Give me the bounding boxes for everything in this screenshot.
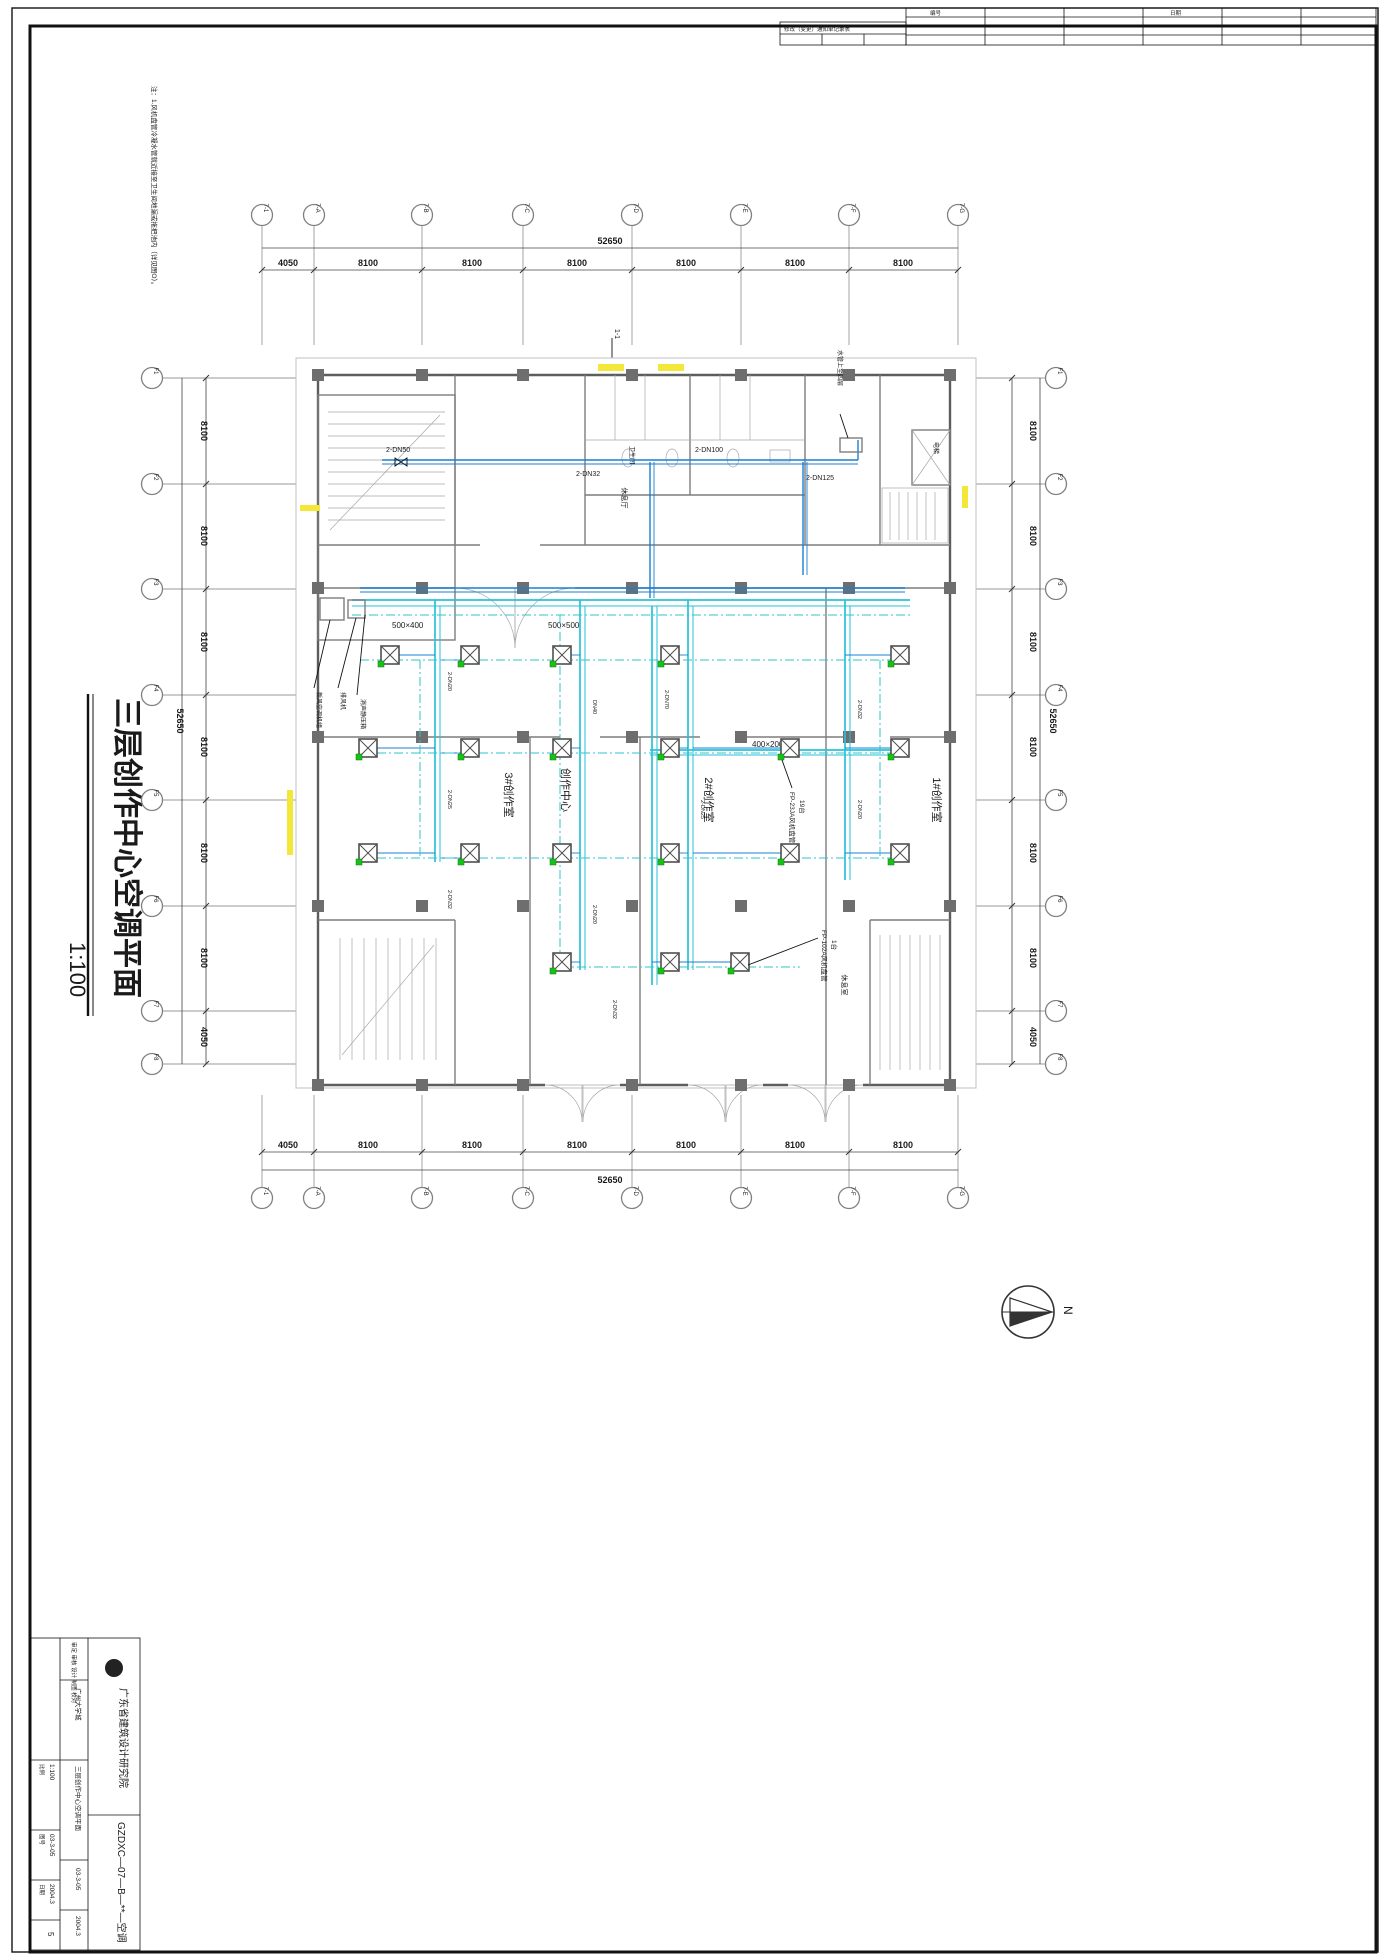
section-mark: 1-1 bbox=[606, 329, 620, 358]
sheet-border bbox=[12, 8, 1378, 1952]
axis-bubble-label: F1 bbox=[152, 367, 158, 375]
building-plan bbox=[287, 358, 976, 1122]
drawing-date: 2004.3 bbox=[74, 1916, 81, 1936]
fcu-unit bbox=[778, 739, 799, 760]
fcu-unit bbox=[356, 739, 377, 760]
dim-total: 52650 bbox=[175, 708, 185, 733]
room-label-toilet: 卫生间 bbox=[628, 446, 636, 464]
axis-bubble-label: 7-D bbox=[632, 1186, 638, 1196]
dim-label: 8100 bbox=[462, 258, 482, 268]
title-block: 广东省建筑设计研究院 GZDXC—07—B—**—空调 审定 审核 设计 制图 … bbox=[30, 1638, 140, 1950]
dim-label: 8100 bbox=[199, 948, 209, 968]
date-label: 日期 bbox=[38, 1884, 45, 1896]
dim-label: 8100 bbox=[1028, 421, 1038, 441]
pipe-label: 2-DN32 bbox=[611, 1000, 617, 1019]
dim-label: 8100 bbox=[1028, 948, 1038, 968]
equipment-label-ahu: 新风空调机组 bbox=[315, 692, 323, 728]
axis-bubble-label: 7-B bbox=[422, 1186, 428, 1195]
company-name: 广东省建筑设计研究院 bbox=[117, 1688, 130, 1788]
number-value: 03-3-05 bbox=[48, 1834, 55, 1857]
dim-label: 8100 bbox=[199, 632, 209, 652]
pipe-label: 2-DN100 bbox=[695, 447, 723, 454]
hvac-corridor-pipes: 2-DN50 2-DN32 2-DN100 2-DN125 bbox=[382, 440, 858, 598]
fcu-unit bbox=[888, 739, 909, 760]
dim-label: 8100 bbox=[199, 421, 209, 441]
pipe-label: 2-DN32 bbox=[576, 471, 600, 478]
dim-label: 8100 bbox=[358, 258, 378, 268]
drawing-number: 03-3-05 bbox=[74, 1868, 81, 1891]
equipment-label-riser: 水管上至四层 bbox=[836, 350, 844, 386]
fcu-callout-fp102-count: 1台 bbox=[830, 940, 839, 950]
scale-value: 1:100 bbox=[48, 1764, 55, 1781]
fcu-unit bbox=[458, 646, 479, 667]
hvac-equipment: 新风空调机组 排风机 消声静压箱 水管上至四层 bbox=[314, 350, 862, 729]
fcu-unit bbox=[378, 646, 399, 667]
pipe-label: 2-DN20 bbox=[856, 800, 862, 819]
dim-label: 8100 bbox=[199, 737, 209, 757]
dim-label: 8100 bbox=[1028, 632, 1038, 652]
fcu-unit bbox=[458, 739, 479, 760]
axis-bubble-label: F6 bbox=[1056, 895, 1062, 903]
axis-bubble-label: 7-C bbox=[523, 1186, 529, 1196]
project-name: 广州大学城 bbox=[74, 1688, 83, 1721]
room-labels: 3#创作室 创作中心 2#创作室 1#创作室 卫生间 电梯 休息厅 休息室 bbox=[502, 442, 944, 996]
pipe-label: 2-DN25 bbox=[699, 800, 705, 819]
fcu-unit bbox=[550, 646, 571, 667]
fcu-unit bbox=[550, 844, 571, 865]
duct-size-label: 500×400 bbox=[392, 621, 424, 630]
axis-bubble-label: F8 bbox=[1056, 1053, 1062, 1061]
axis-bubble-label: F7 bbox=[1056, 1000, 1062, 1008]
equipment-label-fan: 排风机 bbox=[339, 692, 347, 710]
axis-bubble-label: 7-E bbox=[741, 203, 747, 212]
pipe-label: 2-DN20 bbox=[591, 905, 597, 924]
axis-bubble-label: 7-1 bbox=[262, 1187, 268, 1196]
axis-bubble-label: F2 bbox=[152, 473, 158, 481]
structural-columns bbox=[312, 369, 956, 1091]
stair-bottom-right bbox=[870, 920, 950, 1085]
hvac-branch-runs bbox=[360, 600, 905, 985]
dim-total: 52650 bbox=[1048, 708, 1058, 733]
axis-bubble-label: 7-E bbox=[741, 1186, 747, 1195]
axis-bubble-label: F5 bbox=[1056, 789, 1062, 797]
dim-label: 8100 bbox=[1028, 843, 1038, 863]
duct-size-label: 500×500 bbox=[548, 621, 580, 630]
section-mark-label: 1-1 bbox=[613, 329, 620, 339]
dim-label: 8100 bbox=[358, 1140, 378, 1150]
dim-label: 8100 bbox=[893, 258, 913, 268]
fcu-unit bbox=[658, 844, 679, 865]
dim-label: 8100 bbox=[199, 526, 209, 546]
drawing-title-small: 三层创作中心空调平面 bbox=[74, 1766, 83, 1832]
axis-bubble-label: F1 bbox=[1056, 367, 1062, 375]
axis-bubble-label: F2 bbox=[1056, 473, 1062, 481]
pipe-label: 2-DN125 bbox=[806, 475, 834, 482]
grid-bottom: 7-1 7-A 7-B 7-C 7-D 7-E 7-F 7-G 4050 810… bbox=[252, 1095, 969, 1209]
sheet-number: 5 bbox=[46, 1932, 55, 1937]
axis-bubble-label: F6 bbox=[152, 895, 158, 903]
drawing-title-block: 三层创作中心空调平面 1:100 bbox=[65, 694, 143, 1016]
pipe-label: 2-DN70 bbox=[663, 690, 669, 709]
fcu-callout-fp23: FP-23JA风机盘管 bbox=[788, 792, 797, 844]
fcu-unit bbox=[356, 844, 377, 865]
revision-col-2: 日期 bbox=[1170, 10, 1182, 17]
dim-label: 8100 bbox=[1028, 526, 1038, 546]
fcu-callout-fp102: FP-102A风机盘管 bbox=[820, 930, 829, 982]
grid-right: F1 F2 F3 F4 F5 F6 F7 F8 8100 8100 8100 8… bbox=[976, 367, 1067, 1074]
date-value: 2004.3 bbox=[48, 1884, 55, 1904]
pipe-label: 2-DN50 bbox=[386, 447, 410, 454]
axis-bubble-label: F3 bbox=[152, 578, 158, 586]
dim-label: 8100 bbox=[567, 258, 587, 268]
axis-bubble-label: 7-G bbox=[958, 1186, 964, 1196]
fcu-unit bbox=[658, 953, 679, 974]
scale-label: 比例 bbox=[38, 1764, 46, 1776]
room-label-studio1: 1#创作室 bbox=[930, 777, 944, 822]
axis-bubble-label: 7-1 bbox=[262, 204, 268, 213]
axis-bubble-label: 7-D bbox=[632, 203, 638, 213]
dim-total: 52650 bbox=[597, 1175, 622, 1185]
stair-bottom-left bbox=[318, 920, 455, 1085]
dim-label: 8100 bbox=[785, 1140, 805, 1150]
dim-label: 4050 bbox=[278, 258, 298, 268]
number-label: 图号 bbox=[38, 1834, 46, 1846]
fcu-unit bbox=[778, 844, 799, 865]
drawing-scale: 1:100 bbox=[65, 942, 90, 997]
axis-bubble-label: 7-F bbox=[849, 204, 855, 213]
axis-bubble-label: F4 bbox=[152, 684, 158, 692]
axis-bubble-label: 7-A bbox=[314, 203, 320, 212]
north-label: N bbox=[1061, 1306, 1075, 1315]
fcu-unit bbox=[658, 646, 679, 667]
fcu-unit bbox=[550, 953, 571, 974]
dim-label: 8100 bbox=[676, 258, 696, 268]
elevator bbox=[912, 430, 950, 485]
axis-bubble-label: F3 bbox=[1056, 578, 1062, 586]
stair-top-right bbox=[882, 488, 948, 543]
north-arrow: N bbox=[1002, 1286, 1075, 1338]
fcu-unit bbox=[728, 953, 749, 974]
dim-label: 8100 bbox=[676, 1140, 696, 1150]
axis-bubble-label: F5 bbox=[152, 789, 158, 797]
dim-total: 52650 bbox=[597, 236, 622, 246]
dim-label: 4050 bbox=[199, 1027, 209, 1047]
fcu-unit bbox=[658, 739, 679, 760]
room-label-center: 创作中心 bbox=[559, 768, 572, 812]
dim-label: 8100 bbox=[462, 1140, 482, 1150]
dim-label: 4050 bbox=[1028, 1027, 1038, 1047]
room-label-rest: 休息室 bbox=[840, 975, 849, 996]
room-label-lounge: 休息厅 bbox=[620, 488, 629, 509]
highlight-marks bbox=[287, 364, 968, 855]
grid-top: 7-1 7-A 7-B 7-C 7-D 7-E 7-F 7-G 52650 40… bbox=[252, 203, 969, 345]
fcu-unit bbox=[458, 844, 479, 865]
room-label-elevator: 电梯 bbox=[932, 442, 940, 454]
pipe-label: 2-DN20 bbox=[446, 672, 452, 691]
general-note: 注：1.风机盘管冷凝水管就近接至卫生间地漏或拖把池内（详见图O）。 bbox=[150, 86, 159, 288]
dim-label: 4050 bbox=[278, 1140, 298, 1150]
drawing-title: 三层创作中心空调平面 bbox=[110, 698, 143, 998]
dim-label: 8100 bbox=[1028, 737, 1038, 757]
revision-table-title: 修改（变更）通知单记录表 bbox=[784, 25, 851, 33]
dim-label: 8100 bbox=[199, 843, 209, 863]
axis-bubble-label: 7-B bbox=[422, 203, 428, 212]
grid-left: F1 F2 F3 F4 F5 F6 F7 F8 8100 8100 8100 8… bbox=[142, 367, 297, 1074]
fcu-callout-fp23-count: 19台 bbox=[798, 800, 807, 814]
axis-bubble-label: 7-F bbox=[849, 1187, 855, 1196]
room-label-studio3: 3#创作室 bbox=[502, 772, 516, 817]
project-code: GZDXC—07—B—**—空调 bbox=[115, 1822, 128, 1943]
pipe-label: 2-DN32 bbox=[856, 700, 862, 719]
axis-bubble-label: F4 bbox=[1056, 684, 1062, 692]
equipment-label-silencer: 消声静压箱 bbox=[359, 699, 367, 729]
fcu-unit bbox=[888, 646, 909, 667]
axis-bubble-label: 7-A bbox=[314, 1186, 320, 1195]
pipe-label: 2-DN32 bbox=[446, 890, 452, 909]
revision-col-1: 编号 bbox=[930, 9, 942, 17]
fcu-unit bbox=[550, 739, 571, 760]
dim-label: 8100 bbox=[567, 1140, 587, 1150]
dim-label: 8100 bbox=[893, 1140, 913, 1150]
pipe-label: DN40 bbox=[591, 700, 597, 714]
pipe-label: 2-DN25 bbox=[446, 790, 452, 809]
axis-bubble-label: 7-C bbox=[523, 203, 529, 213]
axis-bubble-label: F8 bbox=[152, 1053, 158, 1061]
fcu-unit bbox=[888, 844, 909, 865]
axis-bubble-label: F7 bbox=[152, 1000, 158, 1008]
dim-label: 8100 bbox=[785, 258, 805, 268]
axis-bubble-label: 7-G bbox=[958, 203, 964, 213]
drawing-sheet: 修改（变更）通知单记录表 编号 日期 注：1.风机盘管冷凝水管就近接至卫生间地漏… bbox=[0, 0, 1386, 1959]
